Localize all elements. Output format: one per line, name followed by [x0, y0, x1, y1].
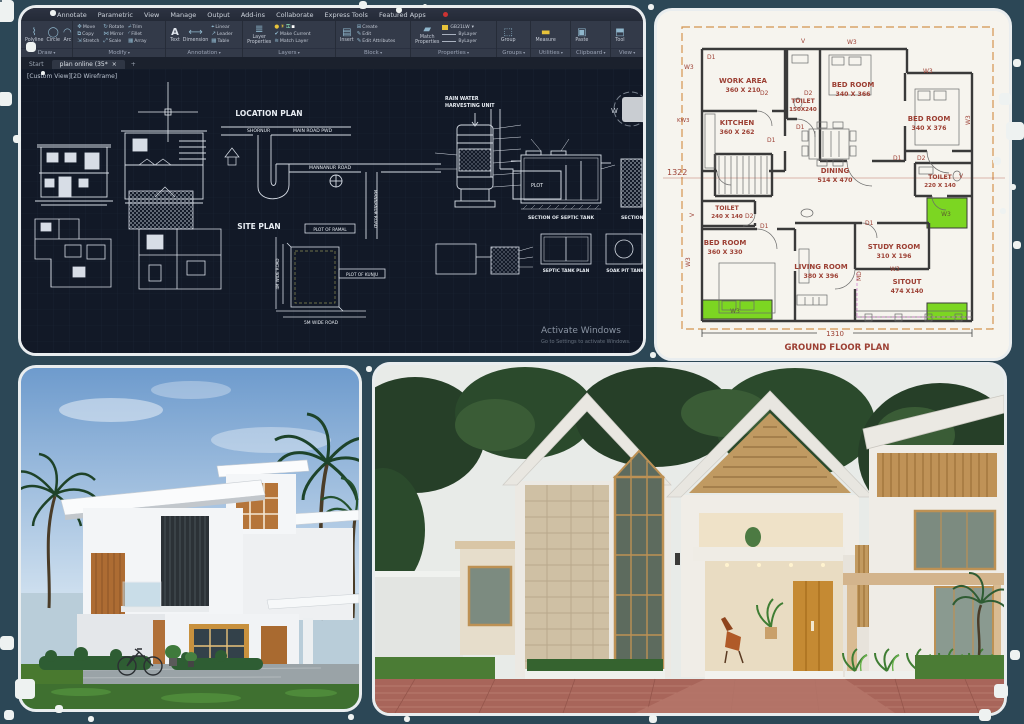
svg-text:BED ROOM: BED ROOM — [832, 81, 875, 89]
svg-text:TOILET: TOILET — [928, 174, 952, 181]
rotate-button[interactable]: ↻Rotate — [103, 24, 124, 31]
canvas-grid — [21, 69, 643, 353]
red-badge-icon — [443, 12, 448, 17]
plot-label: PLOT — [531, 183, 543, 189]
septic-plan-label: SEPTIC TANK PLAN — [543, 268, 590, 274]
tab-view[interactable]: View — [144, 11, 159, 19]
svg-text:D1: D1 — [707, 54, 716, 61]
svg-text:W3: W3 — [684, 64, 694, 71]
svg-text:TOILET: TOILET — [791, 98, 815, 105]
tool-palettes-button[interactable]: ⬒Tool — [615, 27, 624, 43]
mirror-button[interactable]: ⋈Mirror — [103, 31, 124, 38]
svg-text:360 X 330: 360 X 330 — [708, 249, 744, 256]
edit-block-icon: ✎ — [357, 31, 362, 37]
text-icon: A — [171, 27, 179, 38]
activate-windows-watermark: Activate Windows — [541, 326, 621, 336]
tab-manage[interactable]: Manage — [170, 11, 196, 19]
panel-modify: ✥Move ↻Rotate ⌿Trim ⧉Copy ⋈Mirror ◜Fille… — [73, 21, 166, 57]
ribbon: ⌇Polyline ◯Circle ◠Arc Draw ✥Move ↻Rotat… — [21, 21, 643, 57]
dim-1310: 1310 — [826, 330, 844, 338]
rotate-icon: ↻ — [103, 24, 108, 30]
svg-text:310 X 196: 310 X 196 — [877, 253, 912, 260]
match-layer-icon: ≋ — [274, 38, 279, 44]
panel-annotation: AText ⟷Dimension ⌖Linear ↗Leader ▦Table … — [166, 21, 243, 57]
close-tab-icon[interactable]: × — [112, 61, 117, 68]
svg-text:D1: D1 — [865, 220, 874, 227]
svg-text:BED ROOM: BED ROOM — [908, 115, 951, 123]
new-drawing-button[interactable]: + — [125, 60, 142, 69]
stretch-button[interactable]: ⇲Stretch — [77, 38, 99, 45]
layer-properties-button[interactable]: ≣LayerProperties — [247, 24, 271, 45]
linetype-select[interactable]: ByLayer — [442, 31, 477, 38]
upper-recess — [699, 513, 843, 547]
panel-label-modify[interactable]: Modify — [73, 48, 165, 57]
bulb-icon: ● — [274, 24, 279, 30]
leader-icon: ↗ — [211, 31, 216, 37]
fillet-button[interactable]: ◜Fillet — [128, 31, 147, 38]
ribbon-tab-bar: Annotate Parametric View Manage Output A… — [21, 8, 643, 21]
viewport-label[interactable]: [Custom View][2D Wireframe] — [27, 73, 117, 80]
panel-label-view[interactable]: View — [611, 48, 643, 57]
svg-text:W3: W3 — [730, 308, 740, 315]
upper-window — [915, 511, 995, 569]
circle-button[interactable]: ◯Circle — [47, 27, 60, 43]
road-label-main: MAIN ROAD PWD — [293, 128, 333, 134]
create-button[interactable]: ⊞Create — [357, 24, 396, 31]
mirror-icon: ⋈ — [103, 31, 109, 37]
sun-icon: ☀ — [280, 24, 285, 30]
scale-button[interactable]: ⤢Scale — [103, 38, 124, 45]
color-select[interactable]: GB21LW ▾ — [442, 24, 477, 31]
svg-text:D1: D1 — [893, 155, 902, 162]
svg-text:BED ROOM: BED ROOM — [704, 239, 747, 247]
table-button[interactable]: ▦Table — [211, 38, 232, 45]
svg-text:W3: W3 — [965, 115, 972, 125]
paint-splatter — [0, 0, 2, 2]
house-render-1 — [18, 365, 362, 712]
panel-label-layers[interactable]: Layers — [243, 48, 335, 57]
svg-text:W3: W3 — [941, 211, 951, 218]
svg-text:STUDY ROOM: STUDY ROOM — [868, 243, 921, 251]
stretch-icon: ⇲ — [77, 38, 82, 44]
viewcube-face[interactable] — [622, 97, 643, 122]
make-current-icon: ✔ — [274, 31, 279, 37]
plot-ramal-label: PLOT OF RAMAL — [313, 227, 347, 232]
road-label-mannanur-v: MANNANUR ROAD — [373, 190, 378, 228]
scale-icon: ⤢ — [103, 38, 107, 44]
polyline-icon: ⌇ — [32, 27, 37, 38]
svg-text:D1: D1 — [796, 124, 805, 131]
wide-road-label: 5M WIDE ROAD — [304, 320, 339, 326]
section-partial-label: SECTION OF S — [621, 215, 643, 221]
edit-attributes-button[interactable]: ✎Edit Attributes — [357, 38, 396, 45]
tab-output[interactable]: Output — [207, 11, 230, 19]
tab-addins[interactable]: Add-ins — [241, 11, 265, 19]
svg-text:360 X 210: 360 X 210 — [726, 87, 762, 94]
location-plan-title: LOCATION PLAN — [235, 109, 302, 118]
tab-featured-apps[interactable]: Featured Apps — [379, 11, 426, 19]
autocad-canvas[interactable]: [Custom View][2D Wireframe] — [21, 69, 643, 353]
match-properties-button[interactable]: ▰MatchProperties — [415, 24, 439, 45]
floorplan-image: 1322 W3 W3 — [654, 8, 1012, 361]
trim-icon: ⌿ — [128, 24, 131, 30]
svg-text:KW3: KW3 — [677, 118, 690, 124]
side-road-label: 4M WIDE ROAD — [275, 259, 280, 290]
folder-icon: ⬒ — [615, 27, 624, 38]
rain-title-2: HARVESTING UNIT — [445, 103, 495, 109]
tab-parametric[interactable]: Parametric — [98, 11, 133, 19]
lineweight-icon — [442, 41, 456, 42]
edit-button[interactable]: ✎Edit — [357, 31, 396, 38]
group-button[interactable]: ⬚Group — [501, 27, 516, 43]
table-icon: ▦ — [211, 38, 216, 44]
svg-text:TOILET: TOILET — [715, 205, 739, 212]
compound-wall-left — [375, 575, 463, 657]
copy-icon: ⧉ — [77, 31, 81, 37]
paste-button[interactable]: ▣Paste — [575, 27, 588, 43]
svg-text:340 X 376: 340 X 376 — [912, 125, 947, 132]
svg-text:380 X 396: 380 X 396 — [804, 273, 839, 280]
plot-kunju-label: PLOT OF KUNJU — [346, 272, 378, 277]
svg-text:514 X 470: 514 X 470 — [818, 177, 854, 184]
move-icon: ✥ — [77, 24, 82, 30]
panel-clipboard: ▣Paste Clipboard — [571, 21, 611, 57]
panel-label-groups[interactable]: Groups — [497, 48, 531, 57]
svg-text:W3: W3 — [847, 39, 857, 46]
measure-icon: ▬ — [541, 27, 550, 38]
svg-text:KITCHEN: KITCHEN — [720, 119, 755, 127]
dim-1322: 1322 — [667, 168, 687, 177]
linear-button[interactable]: ⌖Linear — [211, 24, 232, 31]
linetype-icon — [442, 34, 456, 35]
circle-icon: ◯ — [48, 27, 59, 38]
match-layer-button[interactable]: ≋Match Layer — [274, 38, 310, 45]
move-button[interactable]: ✥Move — [77, 24, 99, 31]
panel-label-clipboard[interactable]: Clipboard — [571, 48, 610, 57]
septic-section-label: SECTION OF SEPTIC TANK — [528, 215, 594, 221]
dimension-button[interactable]: ⟷Dimension — [183, 27, 209, 43]
match-properties-icon: ▰ — [423, 24, 431, 35]
create-block-icon: ⊞ — [357, 24, 362, 30]
svg-text:WORK AREA: WORK AREA — [719, 77, 768, 85]
array-button[interactable]: ▦Array — [128, 38, 147, 45]
tab-express-tools[interactable]: Express Tools — [324, 11, 367, 19]
dimension-icon: ⟷ — [188, 27, 202, 38]
arc-button[interactable]: ◠Arc — [63, 27, 72, 43]
panel-label-draw[interactable]: Draw — [21, 48, 72, 57]
road-label-mannanur: MANNANUR ROAD — [309, 165, 351, 171]
linear-icon: ⌖ — [211, 24, 214, 30]
panel-utilities: ▬Measure Utilities — [531, 21, 571, 57]
svg-text:360 X 262: 360 X 262 — [720, 129, 755, 136]
svg-text:220 X 140: 220 X 140 — [924, 183, 956, 189]
tab-annotate[interactable]: Annotate — [57, 11, 87, 19]
array-icon: ▦ — [128, 38, 133, 44]
svg-text:D1: D1 — [767, 137, 776, 144]
panel-block: ▤Insert ⊞Create ✎Edit ✎Edit Attributes B… — [336, 21, 411, 57]
balcony-glass — [123, 582, 161, 607]
left-wing — [455, 541, 525, 655]
svg-text:D1: D1 — [760, 223, 769, 230]
panel-label-properties[interactable]: Properties — [411, 48, 496, 57]
tab-collaborate[interactable]: Collaborate — [276, 11, 313, 19]
group-icon: ⬚ — [504, 27, 513, 38]
copy-button[interactable]: ⧉Copy — [77, 31, 99, 38]
insert-icon: ▤ — [342, 27, 351, 38]
panel-properties: ▰MatchProperties GB21LW ▾ ByLayer ByLaye… — [411, 21, 497, 57]
svg-text:W3: W3 — [890, 266, 900, 273]
start-tab[interactable]: Start — [21, 60, 52, 69]
svg-text:MD: MD — [856, 271, 863, 281]
svg-text:W3: W3 — [923, 68, 933, 75]
house2-scene — [375, 365, 1004, 713]
paste-icon: ▣ — [577, 27, 586, 38]
svg-text:D2: D2 — [745, 213, 754, 220]
panel-layers: ≣LayerProperties ●☀⚿▪ ✔Make Current ≋Mat… — [243, 21, 336, 57]
svg-text:150X240: 150X240 — [789, 107, 817, 113]
trim-button[interactable]: ⌿Trim — [128, 24, 147, 31]
svg-text:474 X140: 474 X140 — [891, 288, 924, 295]
color-swatch-icon — [442, 25, 448, 30]
site-plan-title: SITE PLAN — [237, 222, 280, 231]
house1-scene — [21, 368, 359, 709]
svg-text:W3: W3 — [685, 257, 692, 267]
tall-window — [615, 477, 663, 677]
viewcube-west-label[interactable]: W — [611, 107, 618, 115]
floorplan-drawing: 1322 W3 W3 — [657, 11, 1009, 358]
layer-swatch-icon: ▪ — [291, 24, 295, 30]
leader-button[interactable]: ↗Leader — [211, 31, 232, 38]
plan-title: GROUND FLOOR PLAN — [785, 343, 890, 353]
svg-text:D2: D2 — [760, 90, 769, 97]
panel-label-block[interactable]: Block — [336, 48, 410, 57]
activate-windows-subtext: Go to Settings to activate Windows. — [541, 339, 631, 345]
soak-pit-label: SOAK PIT TANK — [606, 268, 643, 274]
rain-title-1: RAIN WATER — [445, 96, 479, 102]
panel-label-utilities[interactable]: Utilities — [531, 48, 570, 57]
polyline-button[interactable]: ⌇Polyline — [25, 27, 44, 43]
layer-state-row[interactable]: ●☀⚿▪ — [274, 24, 310, 31]
autocad-window: Annotate Parametric View Manage Output A… — [18, 5, 646, 356]
svg-text:D2: D2 — [804, 90, 813, 97]
panel-label-annotation[interactable]: Annotation — [166, 48, 242, 57]
svg-text:340 X 366: 340 X 366 — [836, 91, 871, 98]
fillet-icon: ◜ — [128, 31, 130, 37]
lock-icon: ⚿ — [286, 24, 290, 30]
panel-draw: ⌇Polyline ◯Circle ◠Arc Draw — [21, 21, 73, 57]
text-button[interactable]: AText — [170, 27, 180, 43]
panel-view: ⬒Tool View — [611, 21, 643, 57]
panel-groups: ⬚Group Groups — [497, 21, 532, 57]
lineweight-select[interactable]: ByLayer — [442, 38, 477, 45]
drawing-tab[interactable]: plan online (35*× — [52, 60, 125, 69]
svg-text:DINING: DINING — [821, 167, 850, 175]
svg-text:LIVING ROOM: LIVING ROOM — [794, 263, 847, 271]
arc-icon: ◠ — [63, 27, 72, 38]
file-tabs: Start plan online (35*× + — [21, 57, 643, 69]
road-label-shornur: SHORNUR — [247, 128, 271, 134]
layer-properties-icon: ≣ — [255, 24, 263, 35]
svg-text:240 X 140: 240 X 140 — [711, 214, 743, 220]
edit-attributes-icon: ✎ — [357, 38, 362, 44]
svg-text:SITOUT: SITOUT — [893, 278, 922, 286]
insert-button[interactable]: ▤Insert — [340, 27, 354, 43]
svg-text:D2: D2 — [917, 155, 926, 162]
make-current-button[interactable]: ✔Make Current — [274, 31, 310, 38]
measure-button[interactable]: ▬Measure — [535, 27, 555, 43]
house-render-2 — [372, 362, 1007, 716]
